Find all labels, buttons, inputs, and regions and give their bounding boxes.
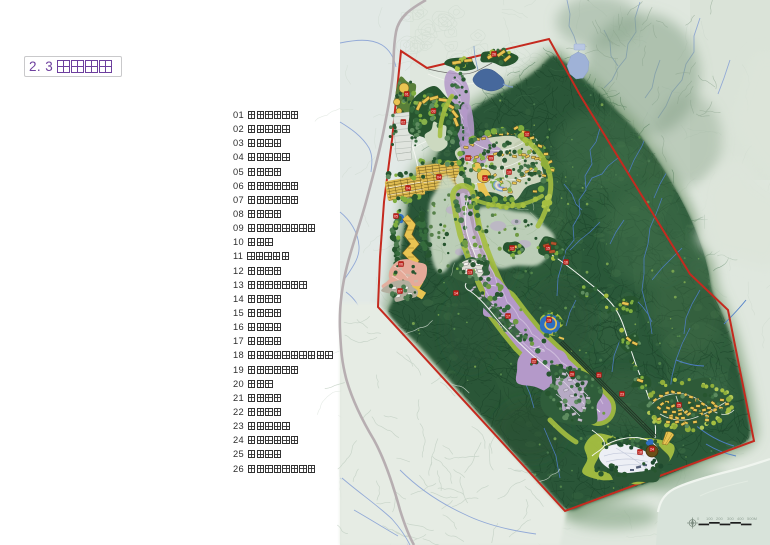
svg-text:100: 100 <box>706 516 713 521</box>
svg-text:18: 18 <box>638 450 642 454</box>
svg-text:17: 17 <box>506 314 510 318</box>
svg-text:24: 24 <box>650 447 654 451</box>
svg-text:25: 25 <box>677 403 681 407</box>
svg-text:12: 12 <box>525 132 529 136</box>
svg-text:21: 21 <box>597 373 601 377</box>
svg-text:16: 16 <box>564 260 568 264</box>
svg-text:01: 01 <box>405 92 409 96</box>
svg-text:05: 05 <box>394 214 398 218</box>
svg-text:20: 20 <box>570 372 574 376</box>
svg-text:300: 300 <box>727 516 734 521</box>
svg-text:04: 04 <box>437 175 441 179</box>
svg-text:23: 23 <box>620 392 624 396</box>
svg-text:12: 12 <box>510 246 514 250</box>
svg-text:07: 07 <box>398 289 402 293</box>
svg-text:08: 08 <box>466 156 470 160</box>
svg-text:10: 10 <box>507 170 511 174</box>
svg-text:200: 200 <box>716 516 723 521</box>
svg-text:04: 04 <box>406 186 410 190</box>
svg-text:13: 13 <box>468 270 472 274</box>
svg-text:500M: 500M <box>747 516 757 521</box>
svg-text:11: 11 <box>483 176 487 180</box>
svg-text:02: 02 <box>401 120 405 124</box>
svg-text:19: 19 <box>547 318 551 322</box>
svg-text:09: 09 <box>489 156 493 160</box>
svg-text:400: 400 <box>737 516 744 521</box>
svg-text:03: 03 <box>432 109 436 113</box>
svg-text:06: 06 <box>399 262 403 266</box>
svg-text:14: 14 <box>454 291 458 295</box>
svg-text:22: 22 <box>532 359 536 363</box>
svg-text:15: 15 <box>546 246 550 250</box>
svg-text:26: 26 <box>492 52 496 56</box>
